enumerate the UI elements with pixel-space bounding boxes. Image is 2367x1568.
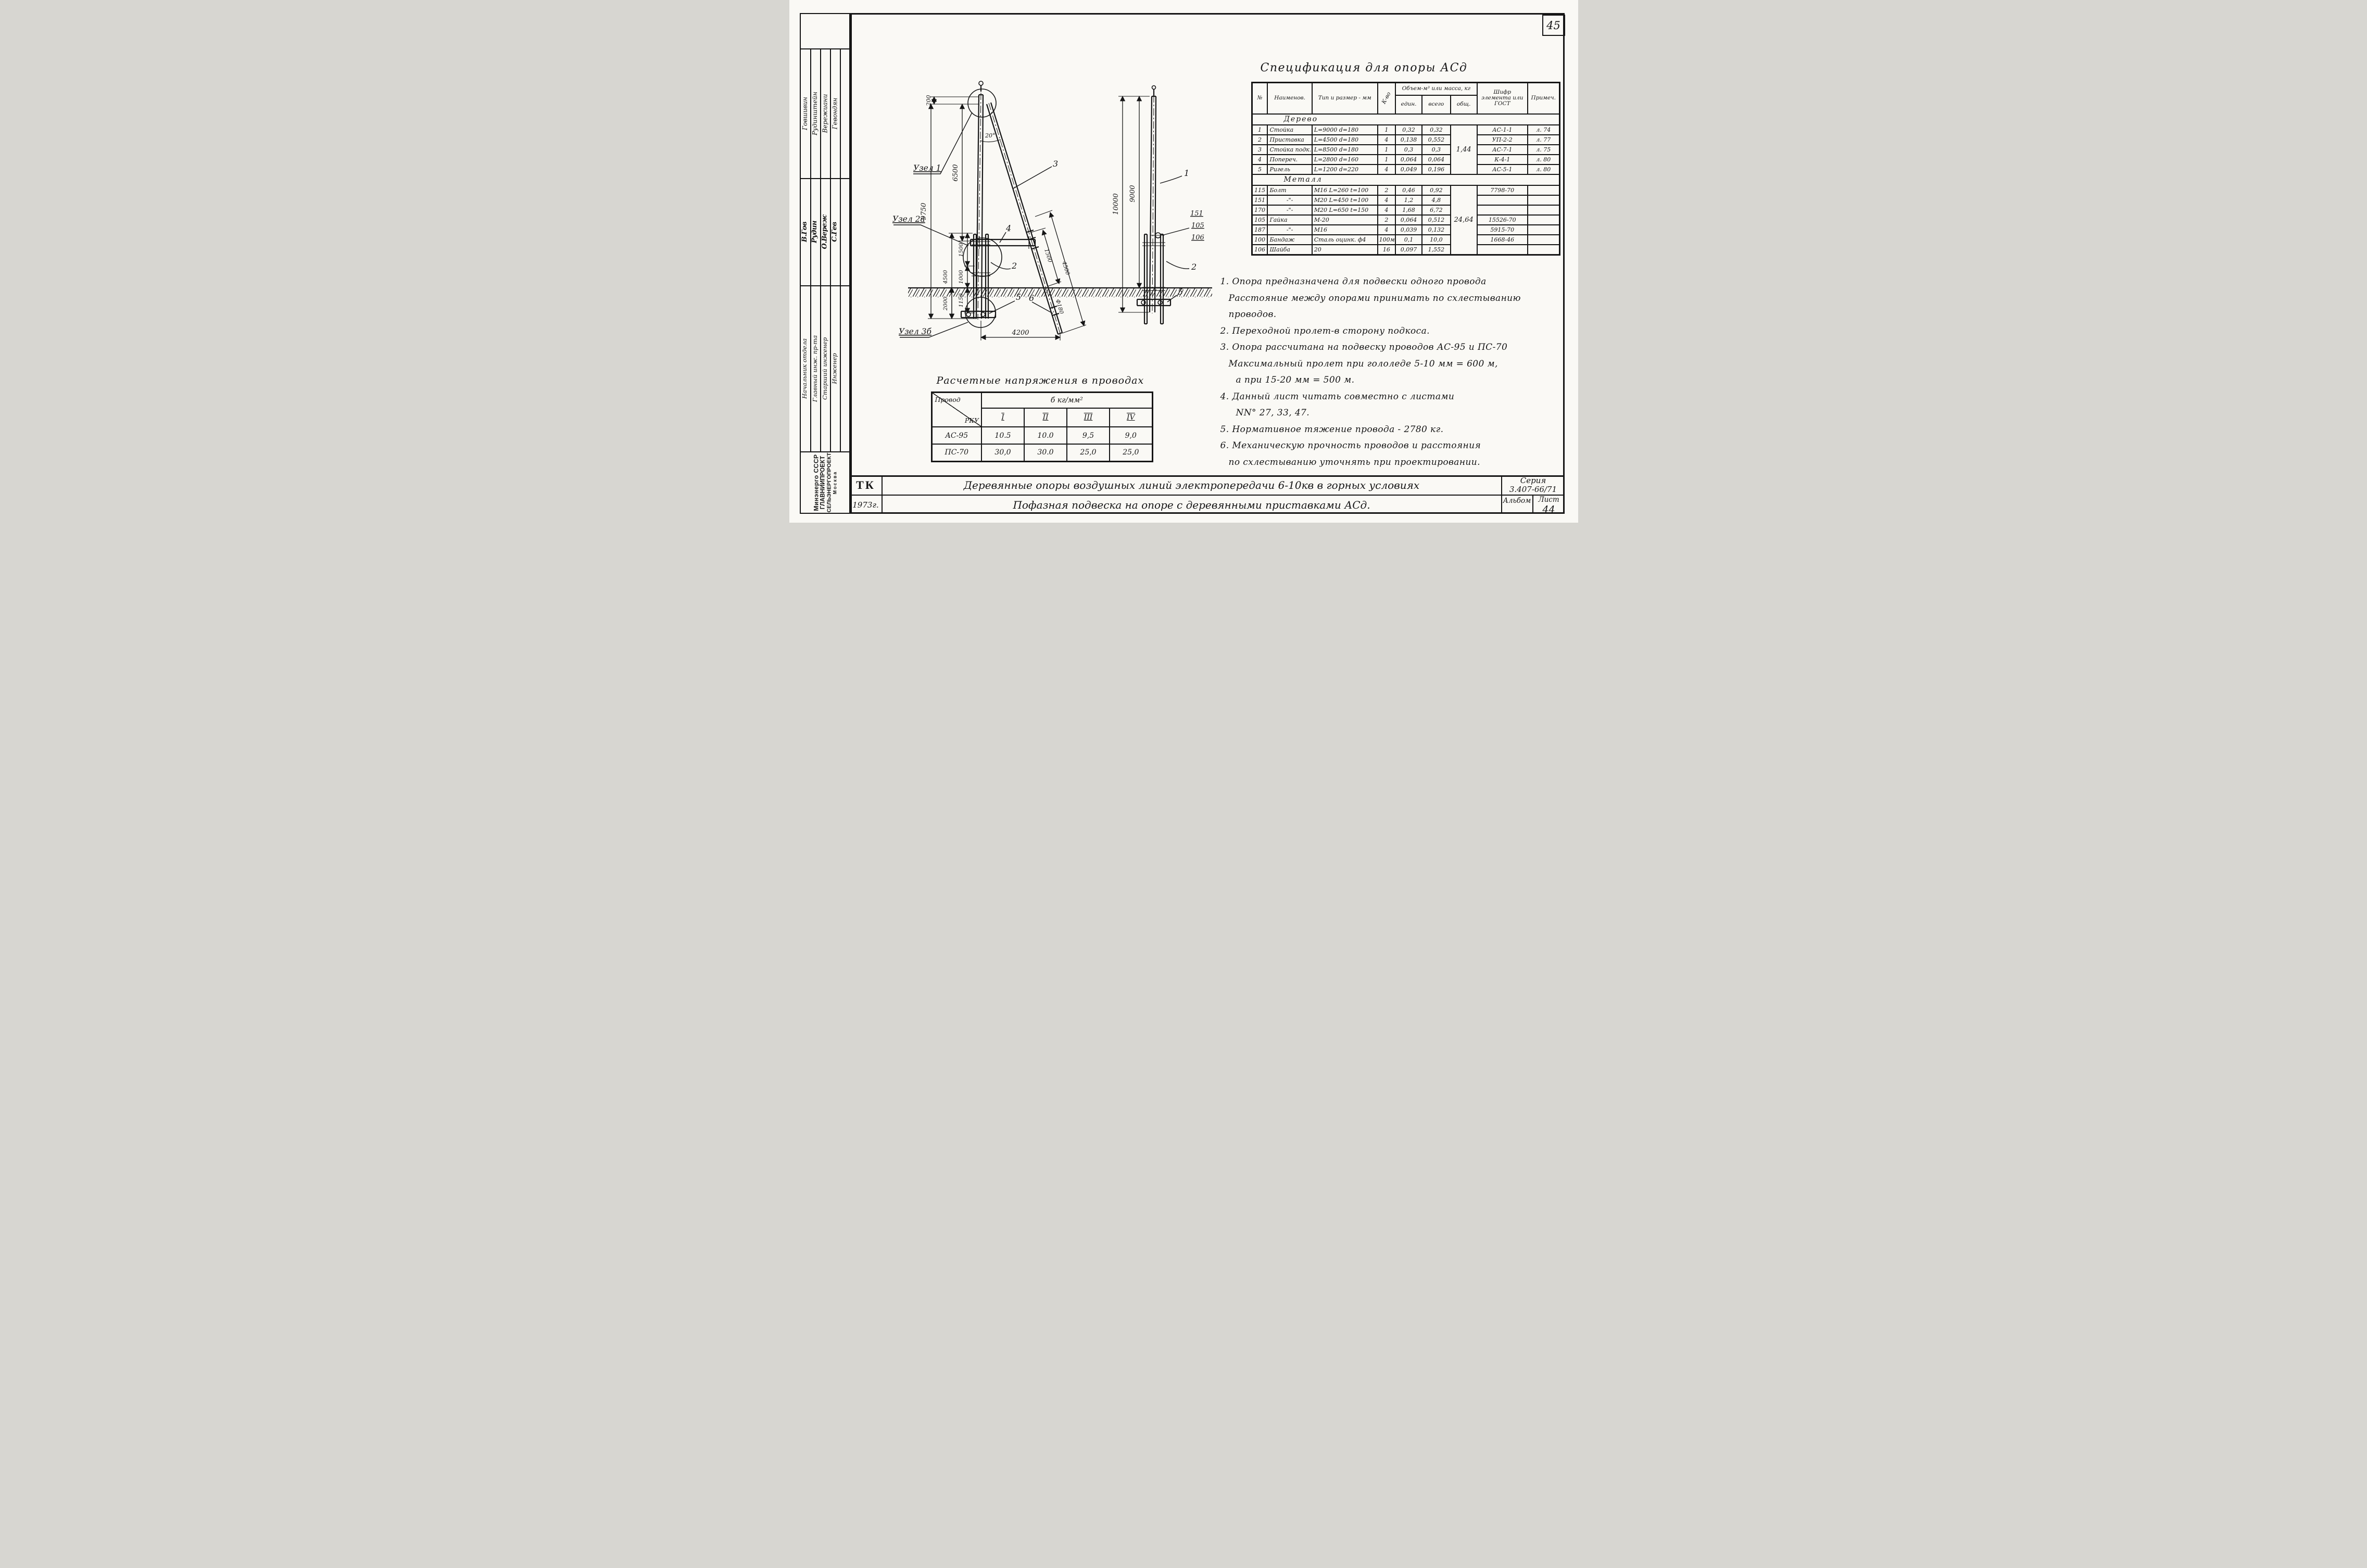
org-line: СЕЛЬЭНЕРГОПРОЕКТ: [826, 453, 832, 513]
spec-cell: 0,92: [1422, 185, 1451, 195]
spec-cell: [1477, 195, 1528, 205]
spec-header-kvo: К-во: [1381, 92, 1392, 105]
spec-wood-total: 1,44: [1451, 125, 1477, 174]
spec-header: Объем-м³ или масса, кг: [1395, 83, 1477, 95]
sidebar-signature-cell: С.Гев: [830, 178, 840, 285]
note-line: а при 15-20 мм = 500 м.: [1220, 372, 1570, 389]
spec-cell: 115: [1252, 185, 1267, 195]
spec-cell: 5: [1252, 165, 1267, 174]
note-line: 5. Нормативное тяжение провода - 2780 кг…: [1220, 422, 1570, 438]
spec-cell: [1528, 225, 1559, 235]
spec-cell: 0,512: [1422, 215, 1451, 225]
spec-metal-total: 24,64: [1451, 185, 1477, 255]
spec-header: един.: [1395, 95, 1422, 114]
spec-cell: 2: [1378, 215, 1396, 225]
page-number: 45: [1546, 19, 1560, 32]
stress-cell: 25,0: [1067, 444, 1110, 461]
callout-106: 106: [1191, 234, 1204, 242]
sheet-title-line2: Пофазная подвеска на опоре с деревянными…: [883, 496, 1501, 514]
spec-header: К-во: [1378, 83, 1396, 114]
spec-header: Шифр элемента или ГОСТ: [1477, 83, 1528, 114]
spec-cell: л. 75: [1528, 145, 1559, 155]
spec-cell: L=4500 d=180: [1312, 135, 1378, 145]
sidebar-name-cell: Рудинштейн: [810, 48, 820, 178]
callout-151: 151: [1190, 210, 1203, 218]
spec-cell: 1,2: [1395, 195, 1422, 205]
stress-cell: 25,0: [1110, 444, 1152, 461]
roman-III: III: [1083, 413, 1094, 422]
org-line: Минэнерго СССР: [812, 453, 820, 513]
callout-3: 3: [1053, 159, 1058, 169]
spec-cell: АС-5-1: [1477, 165, 1528, 174]
spec-cell: [1528, 245, 1559, 255]
stress-col: IV: [1110, 408, 1152, 427]
callout-5-side: 5: [1178, 287, 1183, 297]
spec-cell: 1: [1378, 155, 1396, 165]
sheet-number: 44: [1542, 504, 1555, 515]
spec-cell: 0,32: [1422, 125, 1451, 135]
spec-cell: 3: [1252, 145, 1267, 155]
spec-title: Спецификация для опоры АСд: [1261, 61, 1468, 74]
dim-9000: 9000: [1129, 185, 1137, 202]
spec-cell: 1: [1252, 125, 1267, 135]
spec-cell: л. 74: [1528, 125, 1559, 135]
stress-corner-cell: Провод РКУ: [933, 393, 981, 426]
spec-cell: М20 L=450 t=100: [1312, 195, 1378, 205]
stress-row-label: АС-95: [931, 427, 981, 444]
stress-col: I: [981, 408, 1024, 427]
spec-header: всего: [1422, 95, 1451, 114]
sidebar-name-cell: Вережиани: [820, 48, 830, 178]
spec-cell: 1: [1378, 125, 1396, 135]
sidebar-name-cell: Гевондян: [830, 48, 840, 178]
sidebar-role-cell: Старший инженер: [820, 285, 830, 451]
spec-cell: 16: [1378, 245, 1396, 255]
callout-2: 2: [1011, 261, 1017, 271]
sidebar-signature-cell: В.Гов: [800, 178, 810, 285]
spec-cell: 0,3: [1395, 145, 1422, 155]
signature-text: Рудин: [811, 220, 819, 243]
roman-II: II: [1041, 413, 1049, 422]
spec-cell: 0,049: [1395, 165, 1422, 174]
spec-cell: 0,138: [1395, 135, 1422, 145]
sidebar-role-cell: Инженер: [830, 285, 840, 451]
sidebar-signature-cell: О.Вереж: [820, 178, 830, 285]
dim-strut-1500: 1500: [1043, 248, 1053, 263]
spec-cell: 0,1: [1395, 235, 1422, 245]
note-line: 3. Опора рассчитана на подвеску проводов…: [1220, 339, 1570, 356]
dim-1500: 1500: [958, 243, 964, 257]
stress-span-header: б кг/мм²: [981, 393, 1152, 408]
spec-cell: 1,552: [1422, 245, 1451, 255]
spec-cell: 2: [1252, 135, 1267, 145]
callout-105: 105: [1191, 222, 1204, 230]
org-line: ГЛАВНИИПРОЕКТ: [820, 453, 826, 513]
spec-cell: 15526-70: [1477, 215, 1528, 225]
spec-header: Примеч.: [1528, 83, 1559, 114]
spec-cell: 4,8: [1422, 195, 1451, 205]
spec-cell: L=9000 d=180: [1312, 125, 1378, 135]
dim-4500: 4500: [942, 270, 949, 284]
note-line: NN° 27, 33, 47.: [1220, 405, 1570, 422]
spec-cell: [1528, 195, 1559, 205]
stress-col: II: [1024, 408, 1067, 427]
dim-200: 200: [925, 95, 932, 107]
spec-cell: Попереч.: [1267, 155, 1312, 165]
note-line: проводов.: [1220, 307, 1570, 323]
sheet-cell: Лист 44: [1533, 496, 1565, 514]
dim-1000: 1000: [958, 270, 964, 284]
spec-cell: Сталь оцинк. ф4: [1312, 235, 1378, 245]
spec-cell: 187: [1252, 225, 1267, 235]
series-cell: Серия 3.407-66/71: [1502, 475, 1565, 495]
front-view: Узел 1 Узел 2а Узел 3б 200 9750 6500 450…: [892, 81, 1086, 340]
spec-cell: 4: [1378, 165, 1396, 174]
hook-eye: [979, 81, 983, 85]
spec-cell: 1: [1378, 145, 1396, 155]
spec-cell: 6,72: [1422, 205, 1451, 215]
spec-header: общ.: [1451, 95, 1477, 114]
spec-cell: [1528, 205, 1559, 215]
spec-cell: 0,064: [1395, 155, 1422, 165]
dim-2000: 2000: [942, 296, 949, 311]
spec-cell: 100м: [1378, 235, 1396, 245]
spec-cell: Гайка: [1267, 215, 1312, 225]
spec-cell: 0,3: [1422, 145, 1451, 155]
spec-cell: 0,196: [1422, 165, 1451, 174]
spec-cell: АС-7-1: [1477, 145, 1528, 155]
spec-cell: L=2800 d=160: [1312, 155, 1378, 165]
uzel-1-label: Узел 1: [913, 163, 941, 173]
spec-header: Наименов.: [1267, 83, 1312, 114]
sidebar-signature-cell: Рудин: [810, 178, 820, 285]
stress-cell: 30.0: [1024, 444, 1067, 461]
name-text: Гевондян: [831, 97, 838, 129]
spec-cell: АС-1-1: [1477, 125, 1528, 135]
spec-cell: л. 80: [1528, 155, 1559, 165]
spec-cell: -"-: [1267, 205, 1312, 215]
spec-header: Тип и размер - мм: [1312, 83, 1378, 114]
spec-cell: -"-: [1267, 195, 1312, 205]
spec-cell: 4: [1378, 205, 1396, 215]
spec-cell: -"-: [1267, 225, 1312, 235]
spec-cell: М16 L=260 t=100: [1312, 185, 1378, 195]
spec-cell: 1,68: [1395, 205, 1422, 215]
callout-6: 6: [1029, 293, 1034, 303]
stress-cell: 10.0: [1024, 427, 1067, 444]
spec-cell: 4: [1378, 195, 1396, 205]
spec-cell: 0,064: [1395, 215, 1422, 225]
spec-cell: 10,0: [1422, 235, 1451, 245]
spec-cell: Бандаж: [1267, 235, 1312, 245]
spec-cell: 100: [1252, 235, 1267, 245]
series-label: Серия: [1520, 476, 1546, 485]
signature-text: С.Гев: [831, 222, 839, 242]
sidebar-role-cell: Главный инж. пр-та: [810, 285, 820, 451]
dim-10000: 10000: [1112, 193, 1120, 214]
spec-cell: 0,32: [1395, 125, 1422, 135]
callout-4: 4: [1005, 223, 1011, 233]
organization-block: Минэнерго СССР ГЛАВНИИПРОЕКТ СЕЛЬЭНЕРГОП…: [800, 451, 850, 514]
spec-cell: Стойка: [1267, 125, 1312, 135]
spec-cell: УП-2-2: [1477, 135, 1528, 145]
note-line: 4. Данный лист читать совместно с листам…: [1220, 389, 1570, 406]
spec-cell: 4: [1378, 225, 1396, 235]
roman-I: I: [1000, 413, 1005, 422]
note-line: 2. Переходной пролет-в сторону подкоса.: [1220, 323, 1570, 340]
org-line: Москва: [832, 453, 837, 513]
spec-cell: Шайба: [1267, 245, 1312, 255]
stress-cell: 10.5: [981, 427, 1024, 444]
spec-cell: [1528, 215, 1559, 225]
stress-cell: 9,0: [1110, 427, 1152, 444]
tk-mark: ТК: [850, 475, 882, 495]
spec-cell: 0,097: [1395, 245, 1422, 255]
name-text: Говшивин: [801, 97, 809, 130]
spec-cell: л. 77: [1528, 135, 1559, 145]
series-value: 3.407-66/71: [1509, 485, 1557, 494]
album-cell: Альбом: [1502, 496, 1532, 514]
dim-9750: 9750: [920, 203, 928, 220]
spec-cell: К-4-1: [1477, 155, 1528, 165]
spec-cell: Приставка: [1267, 135, 1312, 145]
sheet-title-line1: Деревянные опоры воздушных линий электро…: [883, 475, 1501, 495]
pole-drawing: Узел 1 Узел 2а Узел 3б 200 9750 6500 450…: [852, 62, 1237, 364]
roman-IV: IV: [1126, 413, 1136, 422]
angle-20: 20°: [985, 132, 996, 139]
spec-cell: М16: [1312, 225, 1378, 235]
role-text: Старший инженер: [821, 337, 828, 400]
spec-cell: 170: [1252, 205, 1267, 215]
spec-cell: 20: [1312, 245, 1378, 255]
signature-text: О.Вереж: [821, 214, 829, 249]
stress-table-title: Расчетные напряжения в проводах: [937, 375, 1144, 386]
spec-cell: л. 80: [1528, 165, 1559, 174]
dim-1150: 1150: [958, 293, 964, 307]
spec-cell: Болт: [1267, 185, 1312, 195]
note-line: Максимальный пролет при гололеде 5-10 мм…: [1220, 356, 1570, 373]
dim-strut-4500: 4500: [1060, 260, 1071, 276]
spec-cell: 5915-70: [1477, 225, 1528, 235]
note-line: 1. Опора предназначена для подвески одно…: [1220, 274, 1570, 290]
note-line: по схлестыванию уточнять при проектирова…: [1220, 454, 1570, 471]
stress-table: Провод РКУ б кг/мм² I II III IV АС-95 10…: [931, 391, 1153, 462]
spec-cell: 0,132: [1422, 225, 1451, 235]
name-text: Вережиани: [821, 94, 828, 133]
callout-2-side: 2: [1191, 262, 1197, 272]
note-line: Расстояние между опорами принимать по сх…: [1220, 290, 1570, 307]
sidebar-name-cell: Говшивин: [800, 48, 810, 178]
role-text: Инженер: [831, 353, 838, 384]
ground-hatch: [908, 288, 1212, 297]
spec-cell: М-20: [1312, 215, 1378, 225]
spec-cell: 4: [1252, 155, 1267, 165]
role-text: Главный инж. пр-та: [811, 335, 819, 401]
note-line: 6. Механическую прочность проводов и рас…: [1220, 438, 1570, 454]
spec-cell: [1528, 185, 1559, 195]
stress-cell: 30,0: [981, 444, 1024, 461]
spec-cell: 4: [1378, 135, 1396, 145]
spec-cell: [1477, 245, 1528, 255]
corner-rku: РКУ: [965, 416, 979, 424]
spec-cell: 1668-46: [1477, 235, 1528, 245]
sidebar-column-line: [840, 48, 841, 451]
spec-cell: 0,039: [1395, 225, 1422, 235]
spec-cell: L=8500 d=180: [1312, 145, 1378, 155]
notes-block: 1. Опора предназначена для подвески одно…: [1220, 274, 1570, 471]
spec-cell: 0,46: [1395, 185, 1422, 195]
sidebar-role-cell: Начальник отдела: [800, 285, 810, 451]
organization-lines: Минэнерго СССР ГЛАВНИИПРОЕКТ СЕЛЬЭНЕРГОП…: [812, 453, 837, 513]
name-text: Рудинштейн: [811, 92, 819, 135]
spec-cell: 105: [1252, 215, 1267, 225]
spec-section: Металл: [1252, 174, 1559, 185]
sheet-label: Лист: [1538, 496, 1559, 504]
stress-cell: 9,5: [1067, 427, 1110, 444]
spec-cell: М20 L=650 t=150: [1312, 205, 1378, 215]
spec-cell: 7798-70: [1477, 185, 1528, 195]
spec-cell: Ригель: [1267, 165, 1312, 174]
spec-cell: Стойка подк.: [1267, 145, 1312, 155]
spec-cell: [1528, 235, 1559, 245]
stress-col: III: [1067, 408, 1110, 427]
stress-row-label: ПС-70: [931, 444, 981, 461]
spec-cell: 0,552: [1422, 135, 1451, 145]
dim-6500: 6500: [952, 164, 960, 181]
callout-1: 1: [1184, 168, 1189, 178]
spec-cell: L=1200 d=220: [1312, 165, 1378, 174]
spec-cell: 0,064: [1422, 155, 1451, 165]
signature-text: В.Гов: [801, 221, 809, 242]
drawing-sheet: 45 Говшивин Рудинштейн Вережиани Гевондя…: [789, 0, 1578, 523]
page-number-box: 45: [1542, 15, 1565, 36]
spec-section: Дерево: [1252, 114, 1559, 125]
dim-4200: 4200: [1011, 329, 1029, 337]
spec-cell: 2: [1378, 185, 1396, 195]
spec-cell: 151: [1252, 195, 1267, 205]
spec-cell: [1477, 205, 1528, 215]
corner-provod: Провод: [935, 396, 961, 403]
role-text: Начальник отдела: [801, 338, 809, 398]
callout-5: 5: [1016, 292, 1021, 302]
year-mark: 1973г.: [850, 496, 882, 514]
uzel-3b-label: Узел 3б: [899, 327, 931, 336]
spec-header: №: [1252, 83, 1267, 114]
spec-table: № Наименов. Тип и размер - мм К-во Объем…: [1251, 82, 1560, 256]
spec-cell: 106: [1252, 245, 1267, 255]
